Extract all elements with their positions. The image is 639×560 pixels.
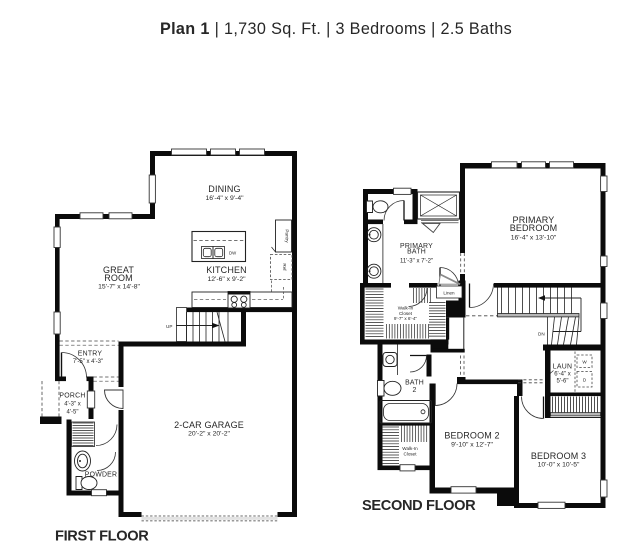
svg-text:ENTRY: ENTRY: [78, 351, 103, 358]
svg-text:DN: DN: [538, 332, 545, 337]
svg-text:LAUN: LAUN: [553, 364, 572, 371]
svg-text:9'-7" x 6'-4": 9'-7" x 6'-4": [394, 316, 418, 321]
svg-text:DINING: DINING: [208, 184, 240, 194]
svg-text:BATH: BATH: [407, 249, 426, 256]
svg-text:BATH: BATH: [405, 380, 424, 387]
svg-text:5'-6": 5'-6": [557, 379, 569, 385]
svg-text:6'-4" x: 6'-4" x: [554, 372, 571, 378]
svg-text:Plan 1 | 1,730 Sq. Ft. | 3 Bed: Plan 1 | 1,730 Sq. Ft. | 3 Bedrooms | 2.…: [160, 20, 512, 38]
svg-text:16'-4" x 9'-4": 16'-4" x 9'-4": [205, 195, 244, 202]
svg-text:16'-4" x 13'-10": 16'-4" x 13'-10": [511, 235, 557, 242]
svg-text:FIRST FLOOR: FIRST FLOOR: [55, 529, 149, 545]
svg-text:9'-10" x 12'-7": 9'-10" x 12'-7": [451, 442, 493, 449]
svg-text:Closet: Closet: [399, 311, 413, 316]
svg-text:2-CAR GARAGE: 2-CAR GARAGE: [174, 420, 244, 430]
svg-text:BEDROOM: BEDROOM: [510, 223, 558, 233]
svg-text:BEDROOM 3: BEDROOM 3: [531, 451, 586, 461]
svg-text:2: 2: [412, 387, 416, 394]
svg-text:UP: UP: [166, 324, 172, 329]
svg-text:W: W: [582, 360, 587, 365]
svg-text:10'-0" x 10'-5": 10'-0" x 10'-5": [538, 462, 580, 469]
svg-text:4'-5": 4'-5": [67, 410, 79, 416]
svg-text:15'-7" x 14'-8": 15'-7" x 14'-8": [98, 284, 140, 291]
svg-text:KITCHEN: KITCHEN: [206, 265, 247, 275]
svg-text:Linen: Linen: [443, 291, 455, 296]
svg-text:Closet: Closet: [403, 451, 417, 456]
svg-text:SECOND FLOOR: SECOND FLOOR: [362, 498, 476, 514]
svg-text:PORCH: PORCH: [59, 393, 85, 400]
svg-text:BEDROOM 2: BEDROOM 2: [444, 431, 499, 441]
svg-text:7'-5" x 4'-3": 7'-5" x 4'-3": [73, 359, 103, 365]
svg-text:ROOM: ROOM: [104, 273, 133, 283]
svg-text:Walk-In: Walk-In: [402, 446, 418, 451]
svg-text:DW: DW: [229, 251, 237, 256]
svg-text:20'-2" x 20'-2": 20'-2" x 20'-2": [188, 431, 230, 438]
svg-text:Ref: Ref: [282, 263, 287, 271]
svg-text:12'-6" x 9'-2": 12'-6" x 9'-2": [207, 276, 246, 283]
svg-text:Walk-In: Walk-In: [398, 306, 414, 311]
svg-text:Pantry: Pantry: [285, 229, 290, 243]
svg-text:11'-3" x 7'-2": 11'-3" x 7'-2": [400, 259, 433, 265]
svg-text:4'-3" x: 4'-3" x: [64, 402, 81, 408]
